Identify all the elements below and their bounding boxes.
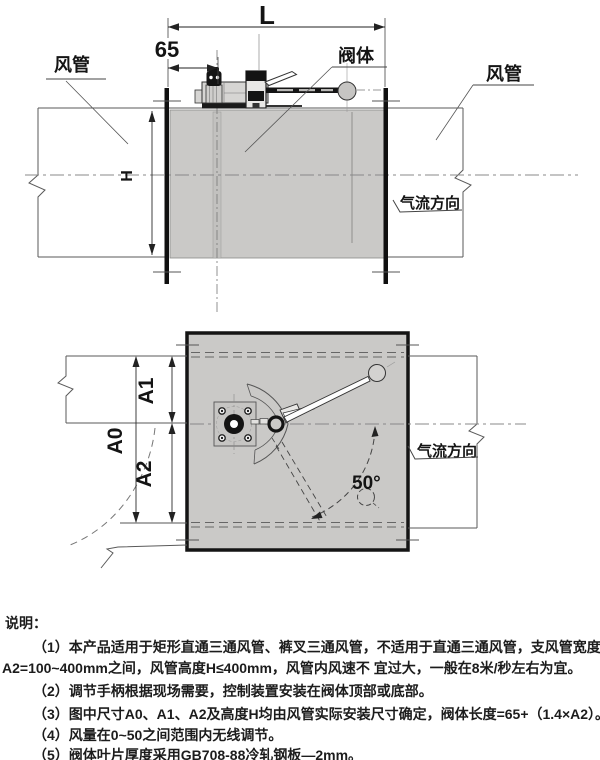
- valve-body: [170, 110, 387, 258]
- dim-A2: A2: [133, 423, 176, 523]
- clamp-band: [248, 91, 264, 101]
- linkage: [251, 420, 259, 425]
- arrowhead: [133, 356, 140, 367]
- rod-segment: [277, 89, 293, 91]
- arrowhead: [149, 244, 156, 255]
- note-line-3: （3）图中尺寸A0、A1、A2及高度H均由风管实际安装尺寸确定，阀体长度=65+…: [33, 704, 600, 724]
- duct-left-label: 风管: [54, 54, 90, 75]
- note-line-4: （4）风量在0~50之间范围内无线调节。: [33, 725, 282, 745]
- dim-H-label: H: [119, 170, 136, 182]
- arrowhead: [168, 23, 179, 31]
- dim-L: L: [168, 0, 385, 87]
- dim-H: H: [119, 111, 155, 255]
- duct-break-right: [455, 108, 471, 257]
- clamp-cap: [246, 71, 266, 81]
- dim-65-label: 65: [155, 37, 179, 62]
- arrowhead: [374, 23, 385, 31]
- arrowhead: [168, 64, 179, 72]
- dim-A1: A1: [135, 356, 176, 423]
- note-line-2: （2）调节手柄根据现场需要，控制装置安装在阀体顶部或底部。: [33, 681, 433, 701]
- arrowhead: [149, 111, 156, 122]
- arrowhead: [169, 356, 176, 367]
- dim-A1-label: A1: [135, 377, 158, 404]
- bolt-dot: [221, 410, 223, 412]
- duct-right-label: 风管: [486, 63, 522, 84]
- side-view: L 65 H 风管 阀体 风管 气流方向: [25, 0, 578, 312]
- handle-ball-plan: [369, 365, 386, 382]
- notes-title: 说明：: [5, 613, 47, 633]
- arrowhead: [133, 512, 140, 523]
- flange-left: [165, 88, 170, 284]
- lock-lever: [265, 72, 297, 86]
- note-line-5: （5）阀体叶片厚度采用GB708-88冷轧钢板—2mm。: [33, 745, 362, 760]
- technical-drawing-page: L 65 H 风管 阀体 风管 气流方向: [0, 0, 600, 760]
- bolt-cap-hole: [216, 76, 219, 79]
- branch-break: [58, 356, 73, 423]
- handle-pivot-ring: [269, 417, 283, 431]
- lower-branch-wall: [101, 545, 187, 568]
- leader-line: [436, 85, 473, 140]
- bolt-base: [206, 85, 222, 103]
- note-line-1: （1）本产品适用于矩形直通三通风管、裤叉三通风管，不适用于直通三通风管，支风管宽…: [33, 637, 600, 657]
- arrowhead: [169, 412, 176, 423]
- clamp-stem: [253, 103, 260, 109]
- dim-A0-label: A0: [104, 428, 127, 455]
- note-line-1b: A2=100~400mm之间，风管高度H≤400mm，风管内风速不 宜过大，一般…: [2, 658, 581, 678]
- bolt-dot: [247, 437, 249, 439]
- rod-segment: [321, 89, 333, 91]
- flange-right: [384, 88, 389, 284]
- bolt-cap-hole: [209, 76, 212, 79]
- bolt-cap: [207, 71, 222, 86]
- shaft-hole: [230, 420, 238, 428]
- leader-line: [66, 81, 128, 144]
- dim-L-label: L: [259, 0, 275, 30]
- arrowhead: [169, 512, 176, 523]
- main-duct-break: [469, 356, 484, 528]
- arrowhead: [169, 423, 176, 434]
- angle-label: 50°: [352, 473, 381, 494]
- bolt-dot: [221, 437, 223, 439]
- duct-break-left: [29, 108, 45, 257]
- plan-view: A1 A2 A0: [58, 333, 526, 568]
- valve-label: 阀体: [338, 45, 375, 66]
- airflow-label-side: 气流方向: [399, 194, 460, 212]
- bolt-dot: [247, 410, 249, 412]
- handle-ball: [338, 82, 356, 100]
- linkage: [260, 419, 268, 425]
